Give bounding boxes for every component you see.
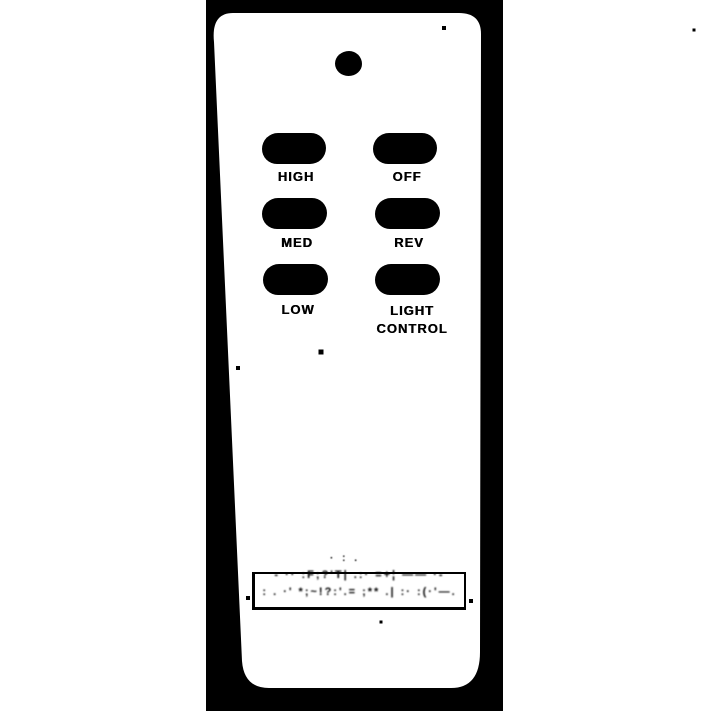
low-button-label: LOW [256, 302, 340, 317]
led-indicator-dot [335, 51, 362, 76]
scanned-photo-page: HIGH OFF MED REV LOW LIGHT CONTROL - ·· … [0, 0, 711, 711]
off-button-label: OFF [365, 169, 449, 184]
light-control-button[interactable] [375, 264, 440, 295]
illegible-print-line-1: - ·· :F;?'T| .:· =+¦ —— ·- [255, 569, 464, 581]
high-button[interactable] [262, 133, 326, 164]
med-button-label: MED [255, 235, 339, 250]
off-button[interactable] [373, 133, 437, 164]
light-control-button-label: LIGHT CONTROL [360, 302, 464, 338]
illegible-print-speck: · : . [330, 553, 420, 564]
rev-button-label: REV [367, 235, 451, 250]
med-button[interactable] [262, 198, 327, 229]
light-control-label-line2: CONTROL [360, 320, 464, 338]
rev-button[interactable] [375, 198, 440, 229]
light-control-label-line1: LIGHT [360, 302, 464, 320]
high-button-label: HIGH [254, 169, 338, 184]
scan-noise-specks [0, 0, 2, 2]
low-button[interactable] [263, 264, 328, 295]
illegible-print-line-2: : . ·' *;~!?:'.= ;** .| :· :(·'—. [255, 586, 464, 598]
model-label-plate: - ·· :F;?'T| .:· =+¦ —— ·- : . ·' *;~!?:… [252, 572, 466, 610]
